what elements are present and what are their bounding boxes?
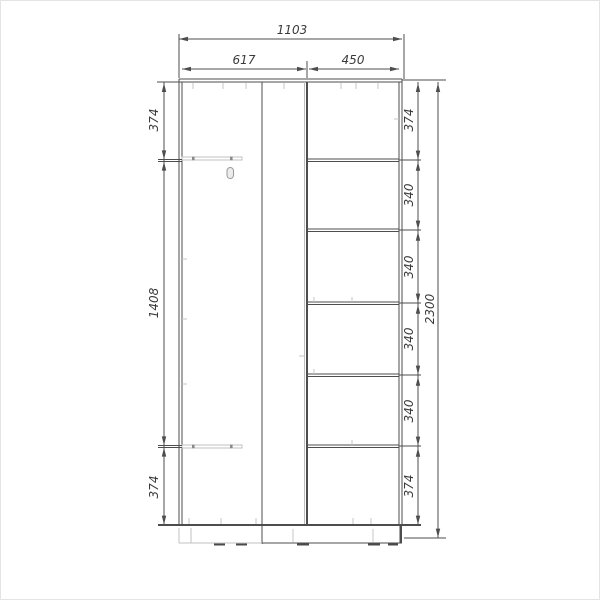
dim-left-top-label: 374: [147, 109, 161, 132]
dim-right-gap-3-label: 340: [402, 255, 416, 278]
dim-left-bottom-label: 374: [147, 476, 161, 499]
dim-right-gap-5-label: 340: [402, 399, 416, 422]
bottom-rail: [182, 445, 242, 448]
dimension-lines: [164, 34, 438, 538]
dim-total-height-label: 2300: [423, 293, 437, 324]
dimension-arrows: [162, 37, 440, 538]
rail-bracket: [192, 445, 195, 449]
left-section-rails: [158, 157, 242, 449]
dim-right-gap-6-label: 374: [402, 475, 416, 498]
carcass-outline: [157, 79, 446, 544]
dim-right-gap-2-label: 340: [402, 183, 416, 206]
dim-left-middle-label: 1408: [147, 287, 161, 318]
dimension-labels: 1103 617 450 374 1408 374 374 340 340 34…: [147, 23, 437, 498]
top-rail: [182, 157, 242, 160]
plinth: [179, 526, 446, 545]
dim-right-gap-4-label: 340: [402, 327, 416, 350]
rail-bracket: [230, 445, 233, 449]
dim-right-gap-1-label: 374: [402, 109, 416, 132]
rail-end-ring: [227, 168, 234, 179]
rail-bracket: [230, 157, 233, 161]
wardrobe-dimension-drawing: 1103 617 450 374 1408 374 374 340 340 34…: [1, 1, 599, 599]
technical-drawing-canvas: 1103 617 450 374 1408 374 374 340 340 34…: [0, 0, 600, 600]
rail-bracket: [192, 157, 195, 161]
dim-left-section-width-label: 617: [233, 53, 256, 67]
fitting-marks: [182, 83, 399, 542]
dim-right-section-width-label: 450: [342, 53, 365, 67]
dim-total-width-label: 1103: [277, 23, 308, 37]
